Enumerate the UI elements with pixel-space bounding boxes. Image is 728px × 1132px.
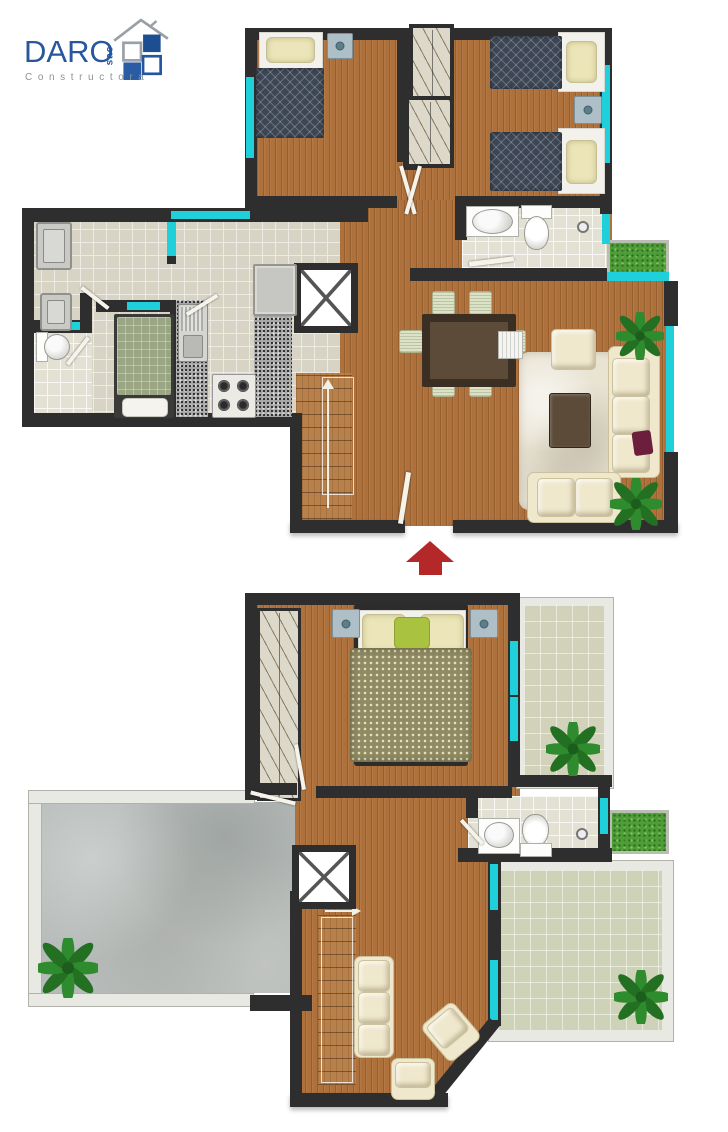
logo-subtitle-text: Constructora [25, 72, 149, 83]
washing-machine [36, 222, 72, 270]
burner [218, 399, 230, 411]
nightstand [332, 609, 360, 638]
logo-brand-text: DARO [24, 34, 114, 70]
nightstand [327, 33, 353, 59]
window [490, 960, 498, 1020]
bed-blanket [256, 68, 324, 138]
arrow-up-icon [322, 379, 334, 389]
sink-basin [484, 822, 514, 848]
stove [212, 374, 256, 418]
plant-icon [38, 938, 98, 998]
window [167, 222, 176, 256]
burner [237, 380, 249, 392]
window [607, 272, 669, 281]
bed-blanket [490, 132, 562, 191]
dining-chair [469, 291, 492, 315]
elevator [294, 263, 358, 333]
sofa-cushion [358, 960, 390, 992]
sink-basin [183, 335, 203, 358]
elevator-x-icon [299, 852, 349, 902]
wall [508, 775, 612, 787]
window [666, 326, 674, 452]
wall [290, 417, 302, 523]
shower-drain [576, 828, 588, 840]
nightstand [470, 609, 498, 638]
stairs-guide-line [321, 917, 353, 1083]
sofa-cushion [612, 358, 650, 397]
terrace-parapet [28, 790, 255, 804]
nightstand [574, 96, 602, 124]
arrow-stem [419, 562, 442, 575]
sofa-cushion [612, 396, 650, 435]
bed-pillow [566, 41, 597, 83]
sofa-cushion [358, 1024, 390, 1056]
wall [290, 520, 405, 533]
plant-icon [610, 478, 662, 530]
wall [250, 995, 312, 1011]
dining-chair [399, 330, 423, 353]
toilet [44, 334, 70, 360]
bed-pillow [122, 398, 168, 417]
side-table [498, 331, 523, 359]
wall [600, 196, 612, 214]
plant-icon [546, 722, 600, 776]
toilet [524, 216, 549, 250]
closet [257, 608, 301, 801]
window [127, 302, 160, 310]
armchair-cushion [395, 1062, 431, 1088]
upper-garden-patch [607, 240, 669, 275]
closet [409, 24, 454, 102]
plant-icon [616, 312, 664, 360]
coffee-table [549, 393, 591, 448]
logo: DARO sac Constructora [24, 28, 194, 86]
bed-blanket [350, 648, 472, 762]
wall [466, 786, 478, 818]
window [510, 641, 518, 695]
stairs-arrow-line [327, 388, 329, 508]
sofa-cushion [537, 478, 575, 517]
wall [22, 208, 34, 427]
burner [237, 399, 249, 411]
window [171, 211, 250, 219]
plant-icon [614, 970, 668, 1024]
washing-machine [40, 293, 72, 331]
elevator-x-icon [301, 270, 351, 326]
accent-pillow [394, 617, 430, 649]
window [246, 77, 254, 158]
closet [405, 96, 454, 168]
toilet-cistern [520, 843, 552, 857]
kitchen-counter [254, 313, 292, 417]
window [490, 864, 498, 910]
burner [218, 380, 230, 392]
wall [316, 786, 512, 798]
bed-blanket [490, 36, 562, 89]
armchair [391, 1058, 435, 1100]
bed-blanket [117, 317, 171, 395]
wall [664, 281, 678, 326]
elevator [292, 845, 356, 909]
wall [410, 268, 607, 281]
lower-garden-patch [609, 810, 669, 854]
arrow-head [406, 541, 454, 562]
stairs-arrow-line [325, 910, 353, 912]
wall [245, 593, 257, 800]
wall [508, 605, 520, 785]
upper-stairs [296, 373, 352, 519]
lower-stairs [318, 915, 356, 1085]
accent-pillow [631, 430, 653, 456]
refrigerator [253, 264, 297, 316]
sofa-cushion [358, 992, 390, 1024]
shower-drain [577, 221, 589, 233]
window [510, 697, 518, 741]
sofa-cushion [575, 478, 613, 517]
window [600, 798, 608, 834]
wall [167, 256, 176, 264]
logo-house-icon [112, 18, 170, 80]
bed-pillow [566, 140, 597, 184]
sink-basin [472, 209, 513, 234]
ottoman [551, 329, 596, 370]
wall [245, 196, 397, 208]
window [602, 214, 610, 244]
dining-chair [432, 291, 455, 315]
bed-pillow [266, 37, 315, 63]
service-bed [114, 314, 174, 418]
floor-plan-page: DARO sac Constructora [0, 0, 728, 1132]
